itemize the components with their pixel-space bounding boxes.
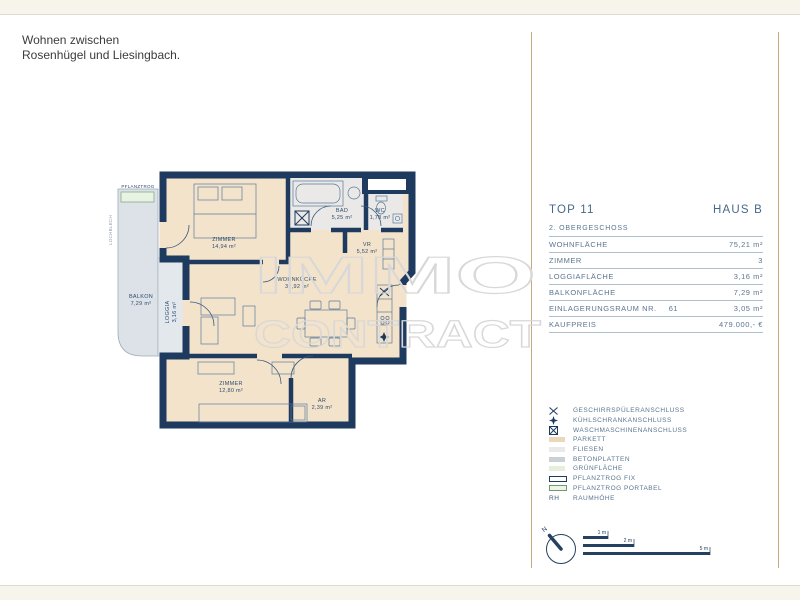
row-label: BALKONFLÄCHE (549, 288, 616, 297)
building-title: HAUS B (713, 204, 763, 216)
shaft (362, 175, 412, 194)
tagline: Wohnen zwischen Rosenhügel und Liesingba… (22, 33, 180, 63)
legend-label: PFLANZTROG FIX (573, 475, 636, 482)
row-value: 479.000,- € (719, 320, 763, 329)
parkett-swatch (549, 437, 565, 442)
legend-label: GRÜNFLÄCHE (573, 465, 623, 472)
legend-label: RAUMHÖHE (573, 495, 615, 502)
washer-boxed-cross-icon (549, 426, 573, 435)
dishwasher-cross-icon (549, 407, 573, 415)
scale-label-5m: 5 m (700, 546, 708, 552)
room-area-wohnkueche: 32,92 m² (285, 284, 309, 290)
row-label: WOHNFLÄCHE (549, 240, 608, 249)
room-label-bad: BAD (336, 208, 348, 214)
legend-row-raumhoehe: RH RAUMHÖHE (549, 493, 774, 503)
room-label-vr: VR (363, 242, 371, 248)
row-label-suffix: 61 (669, 304, 678, 313)
north-label: N (541, 525, 549, 534)
room-label-loggia-group: LOGGIA 3,16 m² (165, 301, 178, 324)
legend-label: PARKETT (573, 436, 606, 443)
legend-row-gruenflaeche: GRÜNFLÄCHE (549, 464, 774, 474)
legend-label: FLIESEN (573, 446, 604, 453)
row-label: EINLAGERUNGSRAUM NR. (549, 304, 657, 313)
betonplatten-swatch (549, 457, 565, 462)
row-value: 3 (758, 256, 763, 265)
legend-label: BETONPLATTEN (573, 456, 630, 463)
floorplan: ZIMMER 14,94 m² BAD 5,25 m² WC 1,78 m² V… (100, 163, 445, 435)
room-area-balkon: 7,29 m² (131, 301, 152, 307)
legend-row-pflanztrog-portabel: PFLANZTROG PORTABEL (549, 484, 774, 494)
rh-symbol: RH (549, 495, 573, 502)
tagline-line1: Wohnen zwischen (22, 33, 180, 48)
room-area-vr: 5,52 m² (357, 249, 378, 255)
room-area-ar: 2,39 m² (312, 405, 333, 411)
row-label: LOGGIAFLÄCHE (549, 272, 614, 281)
legend-row-pflanztrog-fix: PFLANZTROG FIX (549, 474, 774, 484)
row-value: 3,16 m² (734, 272, 763, 281)
floor-label: 2. OBERGESCHOSS (549, 225, 763, 237)
row-value: 75,21 m² (729, 240, 763, 249)
info-row-zimmer: ZIMMER 3 (549, 253, 763, 269)
planter-label: PFLANZTROG (121, 184, 154, 189)
scale-bars: 1 m 2 m 5 m (583, 530, 710, 555)
tagline-line2: Rosenhügel und Liesingbach. (22, 48, 180, 63)
room-area-wc: 1,78 m² (370, 215, 391, 221)
info-row-wohnflaeche: WOHNFLÄCHE 75,21 m² (549, 237, 763, 253)
bottom-cream-band (0, 585, 800, 600)
balcony-area (118, 189, 158, 356)
pflanztrog-portabel-swatch (549, 485, 567, 491)
scale-label-2m: 2 m (624, 538, 632, 544)
expose-page: Wohnen zwischen Rosenhügel und Liesingba… (0, 0, 800, 600)
room-area-zimmer-2: 12,80 m² (219, 388, 243, 394)
legend-label: GESCHIRRSPÜLERANSCHLUSS (573, 407, 685, 414)
room-label-wc: WC (375, 208, 385, 214)
top-cream-band (0, 0, 800, 15)
gruenflaeche-swatch (549, 466, 565, 471)
lochblech-label: LOCHBLECH (108, 215, 113, 245)
scale-bar: N 1 m 2 m 5 m (540, 521, 720, 567)
legend: GESCHIRRSPÜLERANSCHLUSS KÜHLSCHRANKANSCH… (549, 406, 774, 503)
legend-label: PFLANZTROG PORTABEL (573, 485, 662, 492)
scale-label-1m: 1 m (598, 530, 606, 536)
compass: N (541, 525, 576, 563)
room-area-loggia: 3,16 m² (172, 302, 178, 323)
gold-divider-left (531, 32, 532, 568)
legend-row-kuehlschrank: KÜHLSCHRANKANSCHLUSS (549, 416, 774, 426)
room-area-zimmer-1: 14,94 m² (212, 244, 236, 250)
room-label-zimmer-1: ZIMMER (212, 237, 236, 243)
info-row-balkonflaeche: BALKONFLÄCHE 7,29 m² (549, 285, 763, 301)
legend-label: KÜHLSCHRANKANSCHLUSS (573, 417, 672, 424)
row-value: 3,05 m² (734, 304, 763, 313)
row-label: KAUFPREIS (549, 320, 596, 329)
row-value: 7,29 m² (734, 288, 763, 297)
pflanztrog-fix-swatch (549, 476, 567, 482)
legend-row-betonplatten: BETONPLATTEN (549, 454, 774, 464)
legend-row-parkett: PARKETT (549, 435, 774, 445)
floorplan-svg: ZIMMER 14,94 m² BAD 5,25 m² WC 1,78 m² V… (100, 163, 445, 435)
fliesen-swatch (549, 447, 565, 452)
room-label-loggia: LOGGIA (165, 301, 171, 324)
fridge-star-icon (549, 416, 573, 425)
compass-needle (550, 536, 562, 550)
row-label: ZIMMER (549, 256, 582, 265)
room-label-wohnkueche: WOHNKÜCHE (277, 276, 316, 283)
room-label-balkon: BALKON (129, 294, 153, 300)
room-label-ar: AR (318, 398, 326, 404)
panel-title-row: TOP 11 HAUS B (549, 204, 763, 216)
room-label-zimmer-2: ZIMMER (219, 381, 243, 387)
info-row-kaufpreis: KAUFPREIS 479.000,- € (549, 317, 763, 333)
legend-row-fliesen: FLIESEN (549, 445, 774, 455)
legend-label: WASCHMASCHINENANSCHLUSS (573, 427, 687, 434)
info-row-einlagerungsraum: EINLAGERUNGSRAUM NR.61 3,05 m² (549, 301, 763, 317)
legend-row-geschirrspueler: GESCHIRRSPÜLERANSCHLUSS (549, 406, 774, 416)
unit-title: TOP 11 (549, 204, 595, 216)
legend-row-waschmaschine: WASCHMASCHINENANSCHLUSS (549, 425, 774, 435)
gold-divider-right (778, 32, 779, 568)
info-row-loggiaflaeche: LOGGIAFLÄCHE 3,16 m² (549, 269, 763, 285)
bathroom-floor (290, 178, 366, 230)
info-panel: TOP 11 HAUS B 2. OBERGESCHOSS WOHNFLÄCHE… (549, 204, 763, 333)
room-area-bad: 5,25 m² (332, 215, 353, 221)
planter-fix (121, 192, 154, 202)
